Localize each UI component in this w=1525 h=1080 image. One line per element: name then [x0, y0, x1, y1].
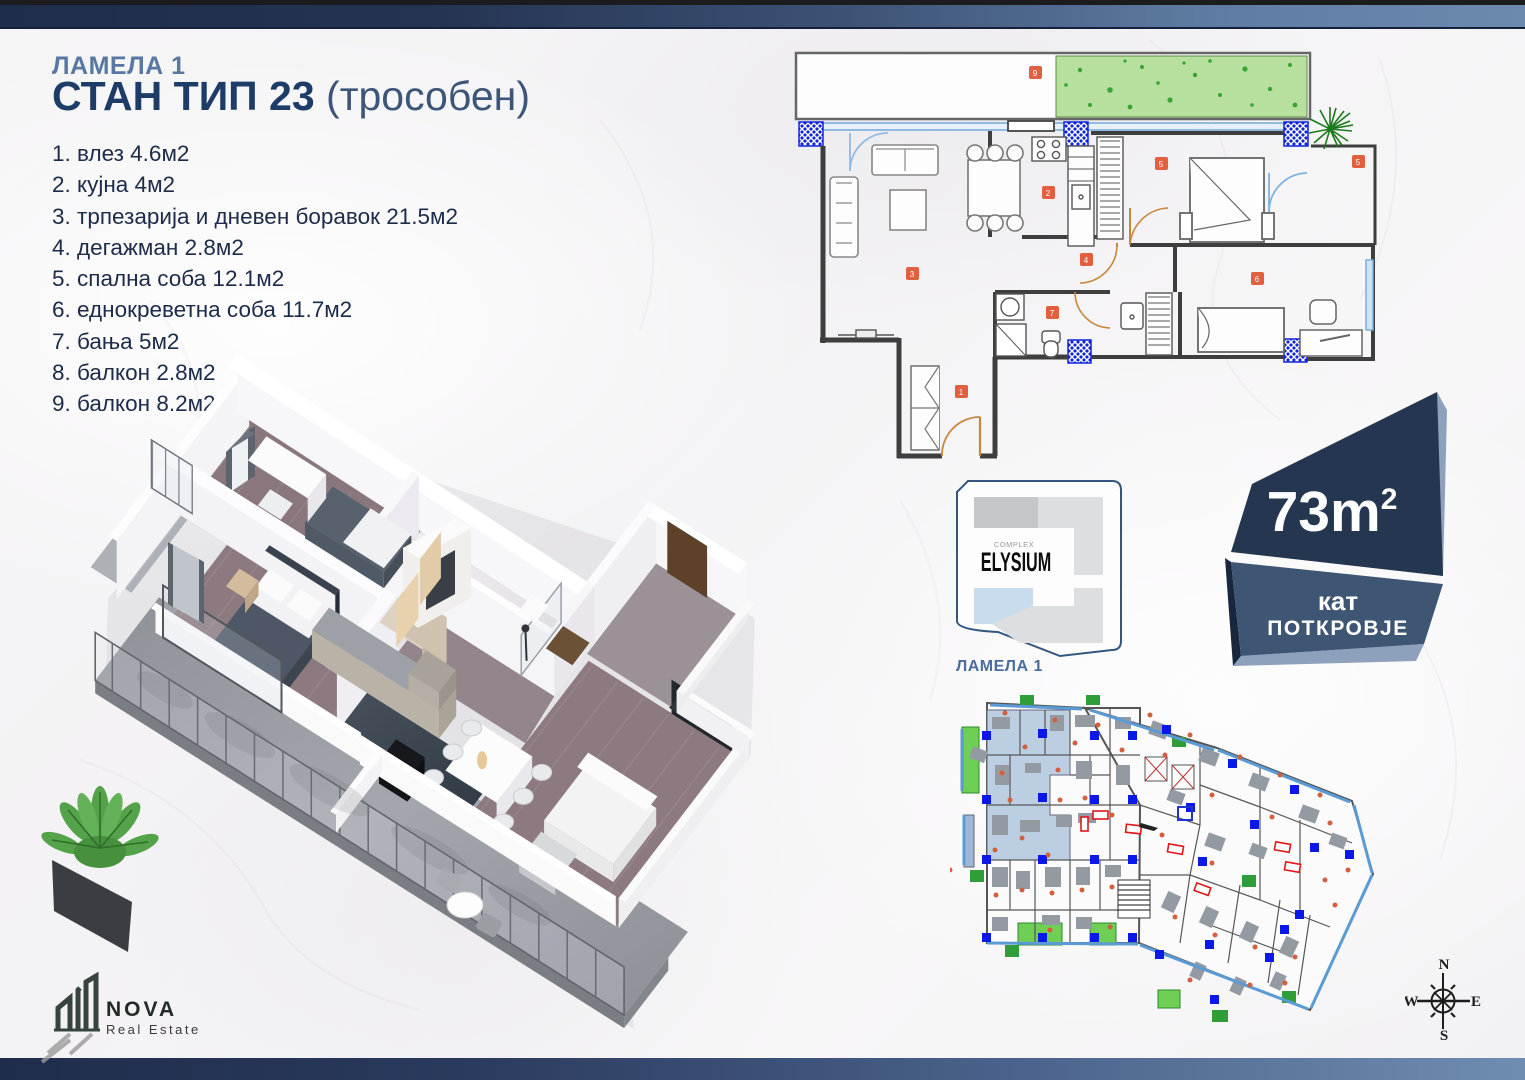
svg-text:кат: кат	[1318, 586, 1358, 616]
svg-text:4: 4	[1084, 256, 1089, 265]
svg-text:2: 2	[1046, 189, 1051, 198]
svg-text:7: 7	[1050, 309, 1055, 318]
svg-text:E: E	[1471, 994, 1481, 1010]
svg-text:W: W	[1405, 994, 1419, 1010]
svg-text:N: N	[1439, 957, 1450, 973]
svg-text:9: 9	[1033, 69, 1038, 78]
svg-text:ELYSIUM: ELYSIUM	[981, 547, 1051, 577]
svg-text:5: 5	[1159, 160, 1164, 169]
svg-text:3: 3	[910, 270, 915, 279]
svg-text:1: 1	[959, 388, 964, 397]
svg-text:S: S	[1440, 1028, 1448, 1044]
svg-text:73m2: 73m2	[1267, 480, 1398, 544]
svg-text:NOVA: NOVA	[106, 998, 177, 1021]
svg-text:Real Estate: Real Estate	[106, 1022, 201, 1037]
svg-text:ПОТКРОВЈЕ: ПОТКРОВЈЕ	[1267, 617, 1409, 640]
svg-text:5: 5	[1356, 158, 1361, 167]
svg-text:6: 6	[1255, 275, 1260, 284]
